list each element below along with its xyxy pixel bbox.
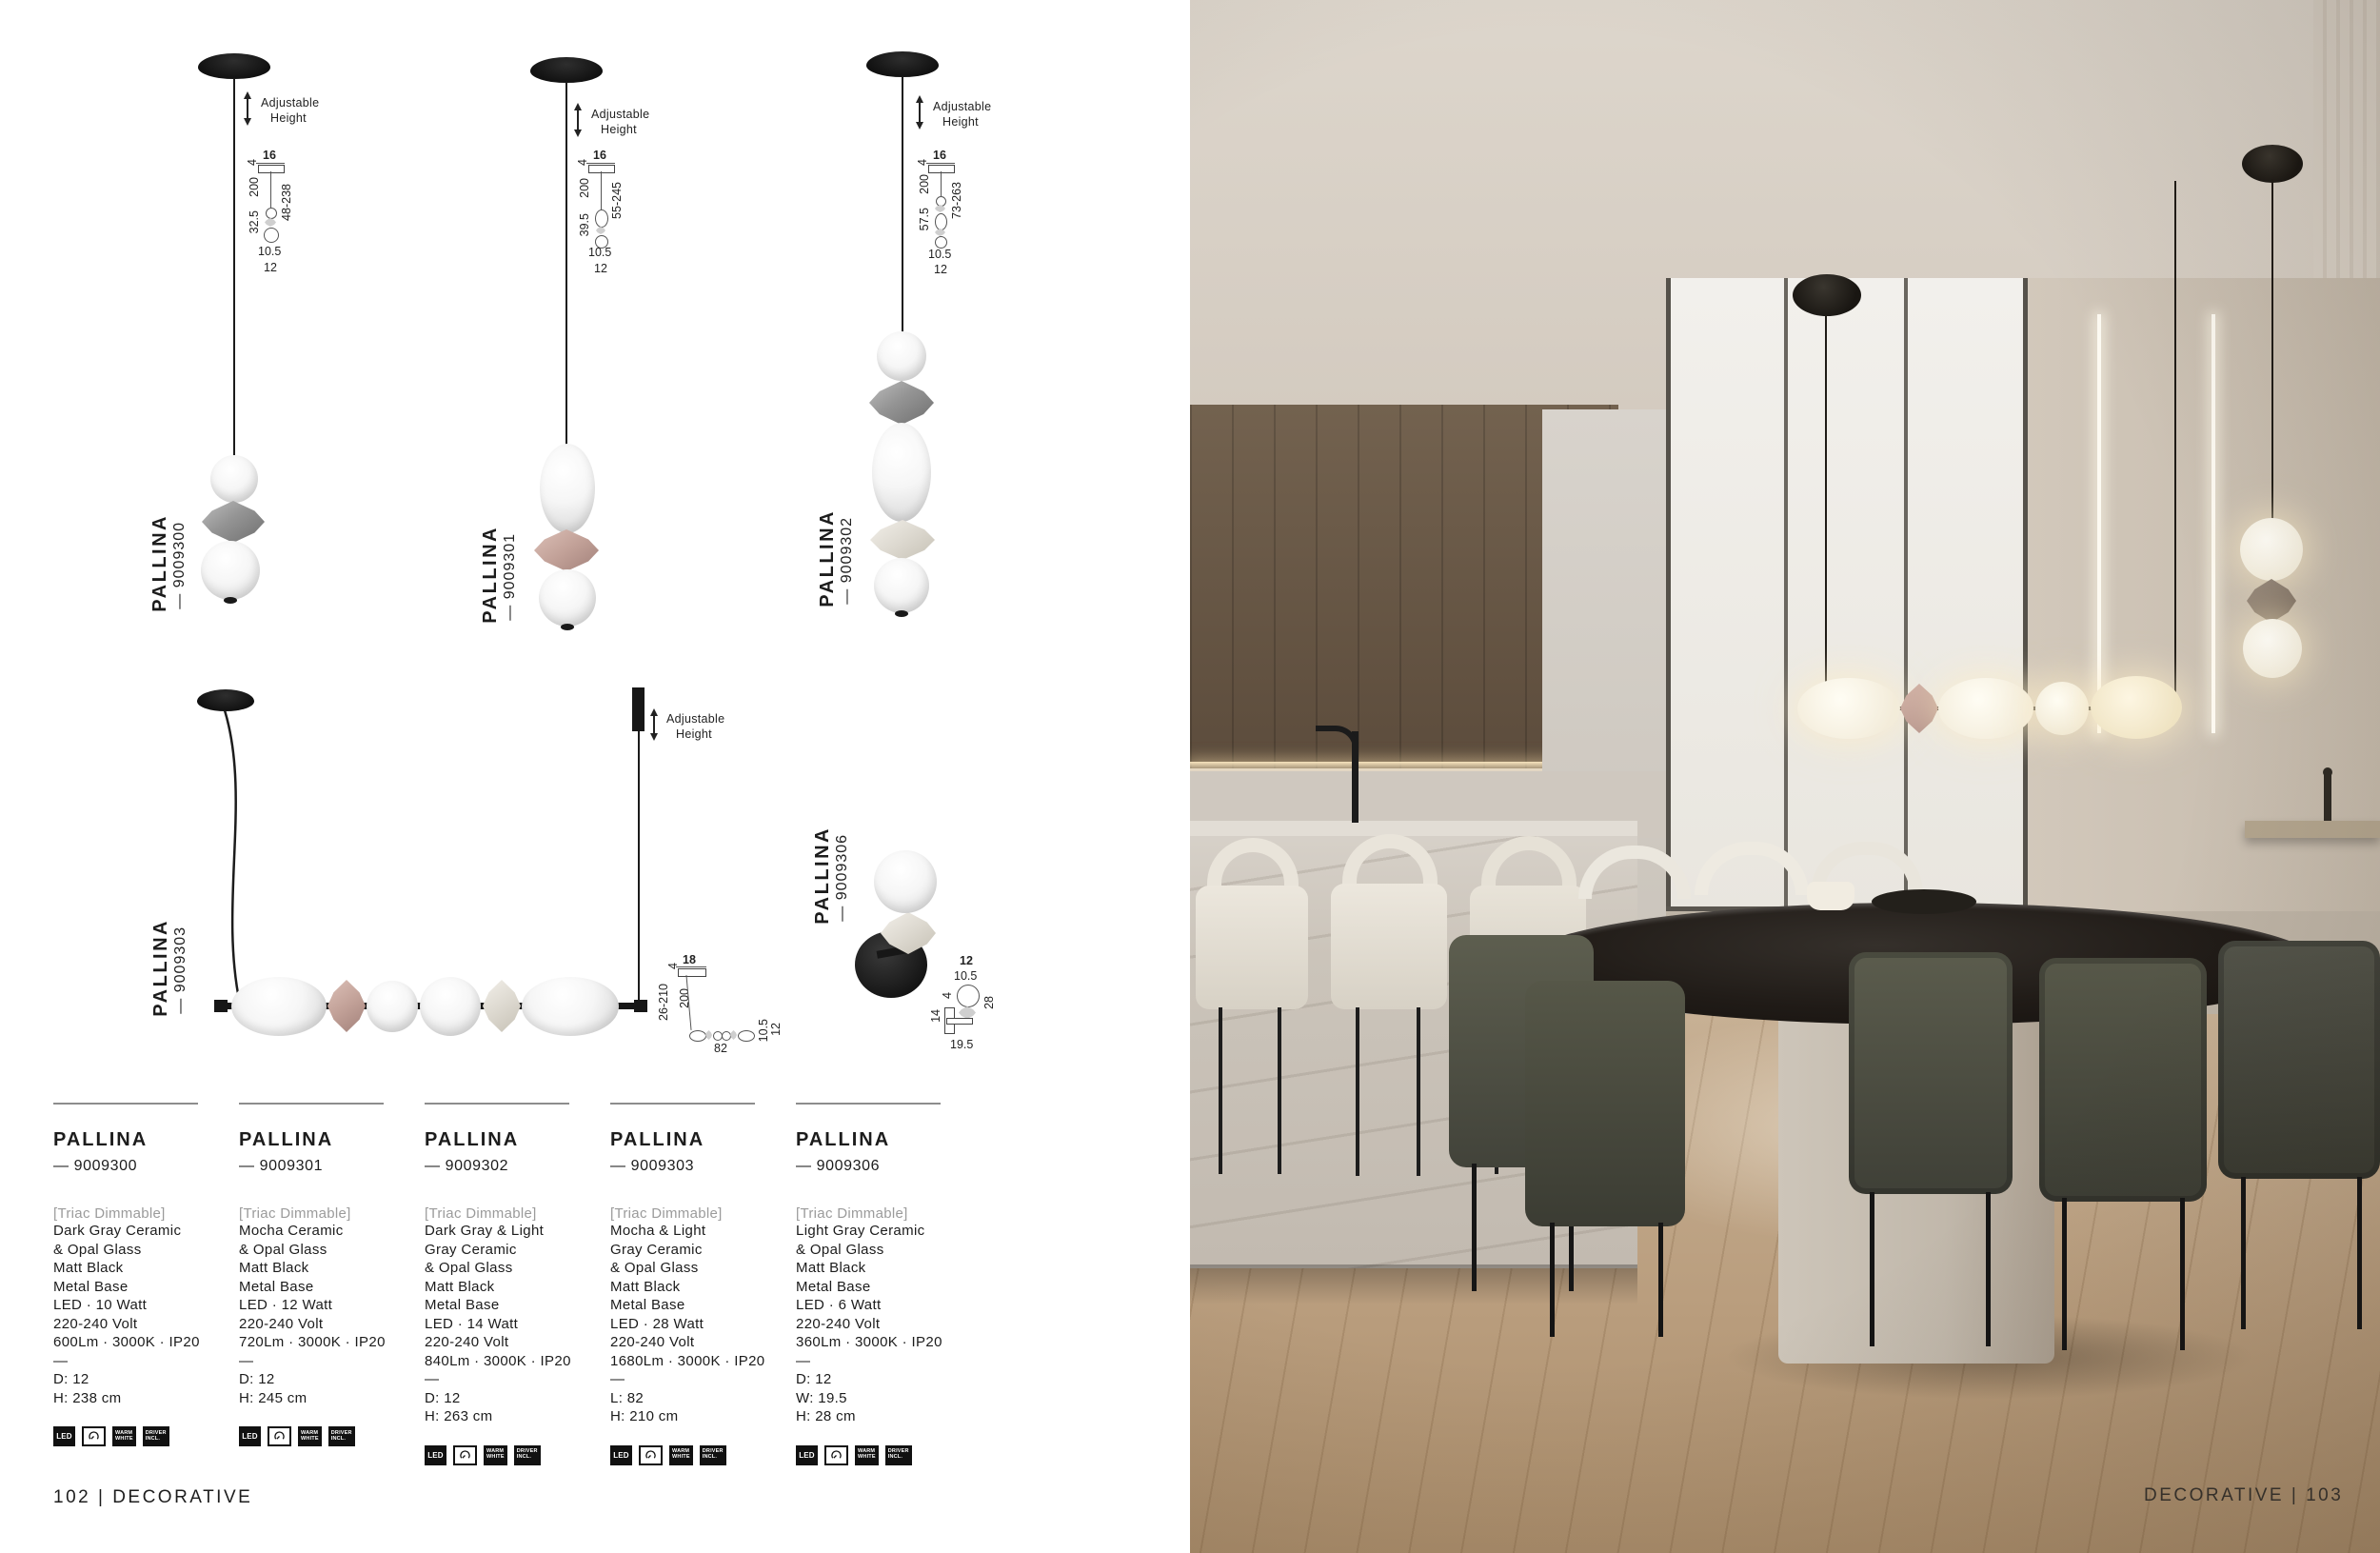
- mini-canopy: [928, 165, 955, 173]
- product-name: PALLINA: [817, 509, 839, 607]
- size-line: H: 263 cm: [425, 1407, 602, 1426]
- spec-lines: Dark Gray Ceramic& Opal GlassMatt BlackM…: [53, 1222, 230, 1352]
- driver-included-icon: DRIVERINCL.: [885, 1445, 912, 1465]
- adjustable-line1: Adjustable: [666, 712, 724, 726]
- spec-divider: —: [53, 1352, 230, 1371]
- adjustable-line2: Height: [942, 115, 979, 129]
- spec-line: Dark Gray & Light: [425, 1222, 602, 1241]
- size-line: H: 238 cm: [53, 1389, 230, 1408]
- dim-canopy-height: 4: [576, 159, 589, 166]
- dim-fixture-height: 32.5: [248, 210, 261, 233]
- driver-line2: INCL.: [146, 1437, 160, 1443]
- led-icon: LED: [425, 1445, 446, 1465]
- warm-white-icon: WARMWHITE: [669, 1445, 693, 1465]
- dim-canopy-width: 16: [933, 149, 946, 162]
- column-rule: [53, 1103, 198, 1105]
- dim-tick: [586, 163, 615, 164]
- size-lines: L: 82H: 210 cm: [610, 1389, 787, 1426]
- pendant-canopy: [530, 57, 603, 83]
- spec-line: & Opal Glass: [425, 1259, 602, 1278]
- warm-white-line2: WHITE: [486, 1455, 505, 1461]
- spec-line: & Opal Glass: [796, 1241, 973, 1260]
- dim-width-outer: 12: [934, 263, 947, 276]
- size-lines: D: 12H: 263 cm: [425, 1389, 602, 1426]
- feature-icons: LED WARMWHITE DRIVERINCL.: [610, 1445, 787, 1465]
- mini-oval: [738, 1030, 755, 1042]
- spec-column: PALLINA — 9009300 [Triac Dimmable] Dark …: [53, 1103, 230, 1446]
- pendant-cable: [902, 76, 903, 333]
- warm-white-icon: WARMWHITE: [855, 1445, 879, 1465]
- driver-included-icon: DRIVERINCL.: [328, 1426, 355, 1446]
- bar-end-fitting: [214, 1000, 228, 1012]
- dim-canopy-height: 4: [916, 159, 929, 166]
- opal-oval: [872, 423, 931, 522]
- dim-fixture-height: 39.5: [578, 213, 591, 236]
- ceramic-bead-dark-gray: [869, 381, 934, 425]
- spec-line: 720Lm · 3000K · IP20: [239, 1333, 416, 1352]
- spec-line: Matt Black: [425, 1278, 602, 1297]
- bar-end-fitting: [634, 1000, 647, 1012]
- driver-included-icon: DRIVERINCL.: [143, 1426, 169, 1446]
- dim-canopy-width: 16: [593, 149, 606, 162]
- page-footer-right: DECORATIVE | 103: [2144, 1485, 2343, 1506]
- pendant-cable: [565, 82, 567, 446]
- end-cap: [895, 610, 908, 617]
- product-sku: — 9009301: [239, 1158, 416, 1175]
- mini-wall-foot: [946, 1018, 973, 1025]
- size-line: D: 12: [239, 1370, 416, 1389]
- opal-sphere: [210, 455, 258, 503]
- adjustable-height-note: Adjustable Height: [933, 99, 991, 130]
- opal-sphere: [420, 977, 481, 1036]
- spec-line: 220-240 Volt: [239, 1315, 416, 1334]
- spec-line: LED · 10 Watt: [53, 1296, 230, 1315]
- spec-line: Gray Ceramic: [425, 1241, 602, 1260]
- mini-sphere: [722, 1031, 731, 1041]
- opal-sphere: [877, 331, 926, 381]
- spec-lines: Dark Gray & LightGray Ceramic& Opal Glas…: [425, 1222, 602, 1370]
- ceramic-bead-mocha: [534, 529, 599, 571]
- product-label: PALLINA — 9009303: [150, 919, 189, 1017]
- dim-canopy-height: 4: [666, 963, 680, 969]
- dim-drop-range: 26-210: [657, 984, 670, 1021]
- feature-icons: LED WARMWHITE DRIVERINCL.: [796, 1445, 973, 1465]
- catalog-page: Adjustable Height 16 4 200 32.5 48-238 1…: [0, 0, 2380, 1553]
- spec-line: LED · 12 Watt: [239, 1296, 416, 1315]
- adjustable-height-arrow-icon: [577, 107, 579, 133]
- product-name: PALLINA: [53, 1129, 230, 1151]
- photo-vignette: [1190, 0, 2380, 1553]
- spec-column: PALLINA — 9009306 [Triac Dimmable] Light…: [796, 1103, 973, 1465]
- product-label: PALLINA — 9009300: [149, 514, 188, 612]
- column-rule: [425, 1103, 569, 1105]
- spec-line: LED · 14 Watt: [425, 1315, 602, 1334]
- opal-sphere: [539, 569, 596, 627]
- driver-included-icon: DRIVERINCL.: [514, 1445, 541, 1465]
- mini-bead: [265, 218, 276, 227]
- mini-sphere: [936, 196, 946, 207]
- spec-line: & Opal Glass: [610, 1259, 787, 1278]
- warm-white-icon: WARMWHITE: [298, 1426, 322, 1446]
- spec-line: Metal Base: [610, 1296, 787, 1315]
- pendant-canopy: [198, 53, 270, 79]
- end-cap: [224, 597, 237, 604]
- spec-line: Mocha Ceramic: [239, 1222, 416, 1241]
- dim-width-inner: 10.5: [258, 245, 281, 258]
- warm-white-line2: WHITE: [115, 1437, 133, 1443]
- dimmer-icon: [268, 1426, 291, 1446]
- dim-total-height: 55-245: [610, 182, 624, 219]
- mini-oval: [935, 213, 947, 230]
- mini-cable: [270, 171, 271, 208]
- spec-line: Metal Base: [796, 1278, 973, 1297]
- product-label: PALLINA — 9009306: [812, 826, 851, 925]
- mini-bead: [596, 227, 605, 234]
- warm-white-line2: WHITE: [301, 1437, 319, 1443]
- product-sku: — 9009301: [502, 526, 519, 621]
- spec-line: LED · 6 Watt: [796, 1296, 973, 1315]
- product-name: PALLINA: [796, 1129, 973, 1151]
- mini-sphere: [264, 228, 279, 243]
- size-line: W: 19.5: [796, 1389, 973, 1408]
- dimmer-icon: [82, 1426, 106, 1446]
- size-lines: D: 12H: 245 cm: [239, 1370, 416, 1407]
- dim-total-height: 48-238: [280, 184, 293, 221]
- led-icon: LED: [796, 1445, 818, 1465]
- product-sku: — 9009300: [53, 1158, 230, 1175]
- driver-line2: INCL.: [517, 1455, 531, 1461]
- opal-oval: [540, 444, 595, 533]
- mini-cable: [941, 171, 942, 196]
- mini-canopy: [258, 165, 285, 173]
- spec-line: Matt Black: [239, 1259, 416, 1278]
- driver-line2: INCL.: [888, 1455, 902, 1461]
- dim-canopy-height: 4: [246, 159, 259, 166]
- dim-canopy-width: 16: [263, 149, 276, 162]
- product-sku: — 9009306: [834, 826, 851, 922]
- spec-line: Metal Base: [425, 1296, 602, 1315]
- interior-photo: DECORATIVE | 103: [1190, 0, 2380, 1553]
- adjustable-line2: Height: [676, 727, 712, 741]
- adjustable-height-note: Adjustable Height: [591, 107, 649, 138]
- mini-sphere: [957, 985, 980, 1007]
- feature-icons: LED WARMWHITE DRIVERINCL.: [239, 1426, 416, 1446]
- size-line: D: 12: [796, 1370, 973, 1389]
- column-rule: [796, 1103, 941, 1105]
- dim-cable-length: 200: [578, 178, 591, 198]
- adjustable-height-note: Adjustable Height: [261, 95, 319, 127]
- product-name: PALLINA: [239, 1129, 416, 1151]
- size-line: L: 82: [610, 1389, 787, 1408]
- pendant-canopy: [866, 51, 939, 77]
- dim-cable-length: 200: [918, 174, 931, 194]
- adjustable-line2: Height: [601, 123, 637, 136]
- spec-column: PALLINA — 9009301 [Triac Dimmable] Mocha…: [239, 1103, 416, 1446]
- driver-included-icon: DRIVERINCL.: [700, 1445, 726, 1465]
- adjustable-height-arrow-icon: [653, 712, 655, 737]
- warm-white-icon: WARMWHITE: [484, 1445, 507, 1465]
- pendant-canopy: [197, 689, 254, 711]
- mini-oval: [595, 209, 608, 228]
- dimmer-icon: [824, 1445, 848, 1465]
- spec-lines: Light Gray Ceramic& Opal GlassMatt Black…: [796, 1222, 973, 1352]
- dimmable-note: [Triac Dimmable]: [796, 1205, 973, 1222]
- size-line: H: 245 cm: [239, 1389, 416, 1408]
- spec-lines: Mocha & LightGray Ceramic& Opal GlassMat…: [610, 1222, 787, 1370]
- pendant-cable: [233, 78, 235, 455]
- dim-width-inner: 10.5: [954, 969, 977, 983]
- dim-base-height: 14: [929, 1009, 942, 1023]
- opal-oval: [522, 977, 619, 1036]
- mini-sphere: [266, 208, 277, 219]
- ceramic-bead-light-gray: [483, 980, 521, 1032]
- product-sku: — 9009302: [839, 509, 856, 605]
- spec-divider: —: [239, 1352, 416, 1371]
- spec-line: Matt Black: [610, 1278, 787, 1297]
- spec-column: PALLINA — 9009303 [Triac Dimmable] Mocha…: [610, 1103, 787, 1465]
- pendant-cable: [638, 731, 640, 1007]
- dim-total-height: 73-263: [950, 182, 963, 219]
- dimmer-icon: [453, 1445, 477, 1465]
- ceramic-bead-light-gray: [870, 520, 935, 560]
- product-sku: — 9009306: [796, 1158, 973, 1175]
- size-line: D: 12: [53, 1370, 230, 1389]
- size-lines: D: 12W: 19.5H: 28 cm: [796, 1370, 973, 1426]
- mini-bead: [705, 1030, 712, 1040]
- warm-white-line2: WHITE: [858, 1455, 876, 1461]
- ceramic-bead-dark-gray: [202, 501, 265, 543]
- spec-line: 360Lm · 3000K · IP20: [796, 1333, 973, 1352]
- led-icon: LED: [53, 1426, 75, 1446]
- adjustable-height-note: Adjustable Height: [666, 711, 724, 743]
- dim-depth: 19.5: [950, 1038, 973, 1051]
- spec-column: PALLINA — 9009302 [Triac Dimmable] Dark …: [425, 1103, 602, 1465]
- page-footer-left: 102 | DECORATIVE: [53, 1487, 252, 1508]
- dim-height-outer: 12: [769, 1023, 783, 1036]
- product-name: PALLINA: [812, 826, 834, 925]
- led-icon: LED: [239, 1426, 261, 1446]
- led-icon: LED: [610, 1445, 632, 1465]
- spec-line: Dark Gray Ceramic: [53, 1222, 230, 1241]
- adjustable-line1: Adjustable: [591, 108, 649, 121]
- opal-sphere: [874, 850, 937, 913]
- adjustable-line1: Adjustable: [933, 100, 991, 113]
- product-name: PALLINA: [480, 526, 502, 624]
- dimmer-icon: [639, 1445, 663, 1465]
- product-name: PALLINA: [149, 514, 171, 612]
- product-sku: — 9009302: [425, 1158, 602, 1175]
- mini-oval: [689, 1030, 706, 1042]
- dim-tick: [676, 966, 706, 967]
- curved-cable: [217, 710, 259, 1007]
- product-name: PALLINA: [610, 1129, 787, 1151]
- spec-line: 600Lm · 3000K · IP20: [53, 1333, 230, 1352]
- spec-line: Mocha & Light: [610, 1222, 787, 1241]
- spec-line: 220-240 Volt: [796, 1315, 973, 1334]
- dim-width-outer: 12: [264, 261, 277, 274]
- product-name: PALLINA: [150, 919, 172, 1017]
- opal-sphere: [874, 558, 929, 613]
- adjustable-line2: Height: [270, 111, 307, 125]
- size-line: D: 12: [425, 1389, 602, 1408]
- dim-diameter: 12: [960, 954, 973, 967]
- end-cap: [561, 624, 574, 630]
- product-sku: — 9009303: [172, 919, 189, 1014]
- spec-line: 840Lm · 3000K · IP20: [425, 1352, 602, 1371]
- dim-tick: [926, 163, 955, 164]
- dim-length: 82: [714, 1042, 727, 1055]
- dim-total-height: 28: [982, 996, 996, 1009]
- mini-canopy: [678, 968, 706, 977]
- product-sku: — 9009303: [610, 1158, 787, 1175]
- spec-line: 220-240 Volt: [610, 1333, 787, 1352]
- spec-line: Metal Base: [239, 1278, 416, 1297]
- spec-line: 220-240 Volt: [53, 1315, 230, 1334]
- dimmable-note: [Triac Dimmable]: [239, 1205, 416, 1222]
- dimmable-note: [Triac Dimmable]: [425, 1205, 602, 1222]
- feature-icons: LED WARMWHITE DRIVERINCL.: [53, 1426, 230, 1446]
- dim-cable-length: 200: [248, 177, 261, 197]
- dim-fixture-height: 57.5: [918, 208, 931, 230]
- dim-height-inner: 10.5: [757, 1019, 770, 1042]
- opal-sphere: [201, 541, 260, 600]
- spec-line: 1680Lm · 3000K · IP20: [610, 1352, 787, 1371]
- column-rule: [610, 1103, 755, 1105]
- spec-line: & Opal Glass: [239, 1241, 416, 1260]
- dim-width-outer: 12: [594, 262, 607, 275]
- product-label: PALLINA — 9009301: [480, 526, 519, 624]
- spec-divider: —: [425, 1370, 602, 1389]
- driver-line2: INCL.: [703, 1455, 717, 1461]
- mini-bead: [730, 1030, 737, 1040]
- opal-sphere: [367, 981, 418, 1032]
- column-rule: [239, 1103, 384, 1105]
- spec-line: Light Gray Ceramic: [796, 1222, 973, 1241]
- mini-canopy: [588, 165, 615, 173]
- spec-line: Matt Black: [796, 1259, 973, 1278]
- dim-width-inner: 10.5: [588, 246, 611, 259]
- product-sku: — 9009300: [171, 514, 188, 609]
- driver-line2: INCL.: [331, 1437, 346, 1443]
- spec-lines: Mocha Ceramic& Opal GlassMatt BlackMetal…: [239, 1222, 416, 1352]
- dim-arm: 4: [941, 992, 954, 999]
- size-lines: D: 12H: 238 cm: [53, 1370, 230, 1407]
- size-line: H: 28 cm: [796, 1407, 973, 1426]
- dim-canopy-width: 18: [683, 953, 696, 966]
- spec-line: 220-240 Volt: [425, 1333, 602, 1352]
- warm-white-line2: WHITE: [672, 1455, 690, 1461]
- product-label: PALLINA — 9009302: [817, 509, 856, 607]
- ceiling-cable-anchor: [632, 687, 645, 731]
- dimmable-note: [Triac Dimmable]: [610, 1205, 787, 1222]
- product-name: PALLINA: [425, 1129, 602, 1151]
- dim-width-inner: 10.5: [928, 248, 951, 261]
- spec-line: Metal Base: [53, 1278, 230, 1297]
- mini-bead: [935, 229, 945, 236]
- adjustable-height-arrow-icon: [247, 95, 248, 122]
- feature-icons: LED WARMWHITE DRIVERINCL.: [425, 1445, 602, 1465]
- size-line: H: 210 cm: [610, 1407, 787, 1426]
- spec-line: & Opal Glass: [53, 1241, 230, 1260]
- dim-tick: [256, 163, 285, 164]
- spec-divider: —: [796, 1352, 973, 1371]
- spec-line: Gray Ceramic: [610, 1241, 787, 1260]
- warm-white-icon: WARMWHITE: [112, 1426, 136, 1446]
- mini-cable: [601, 171, 602, 209]
- ceramic-bead-mocha: [327, 980, 366, 1032]
- adjustable-line1: Adjustable: [261, 96, 319, 110]
- spec-line: LED · 28 Watt: [610, 1315, 787, 1334]
- spec-line: Matt Black: [53, 1259, 230, 1278]
- spec-divider: —: [610, 1370, 787, 1389]
- dimmable-note: [Triac Dimmable]: [53, 1205, 230, 1222]
- adjustable-height-arrow-icon: [919, 99, 921, 126]
- opal-oval: [231, 977, 327, 1036]
